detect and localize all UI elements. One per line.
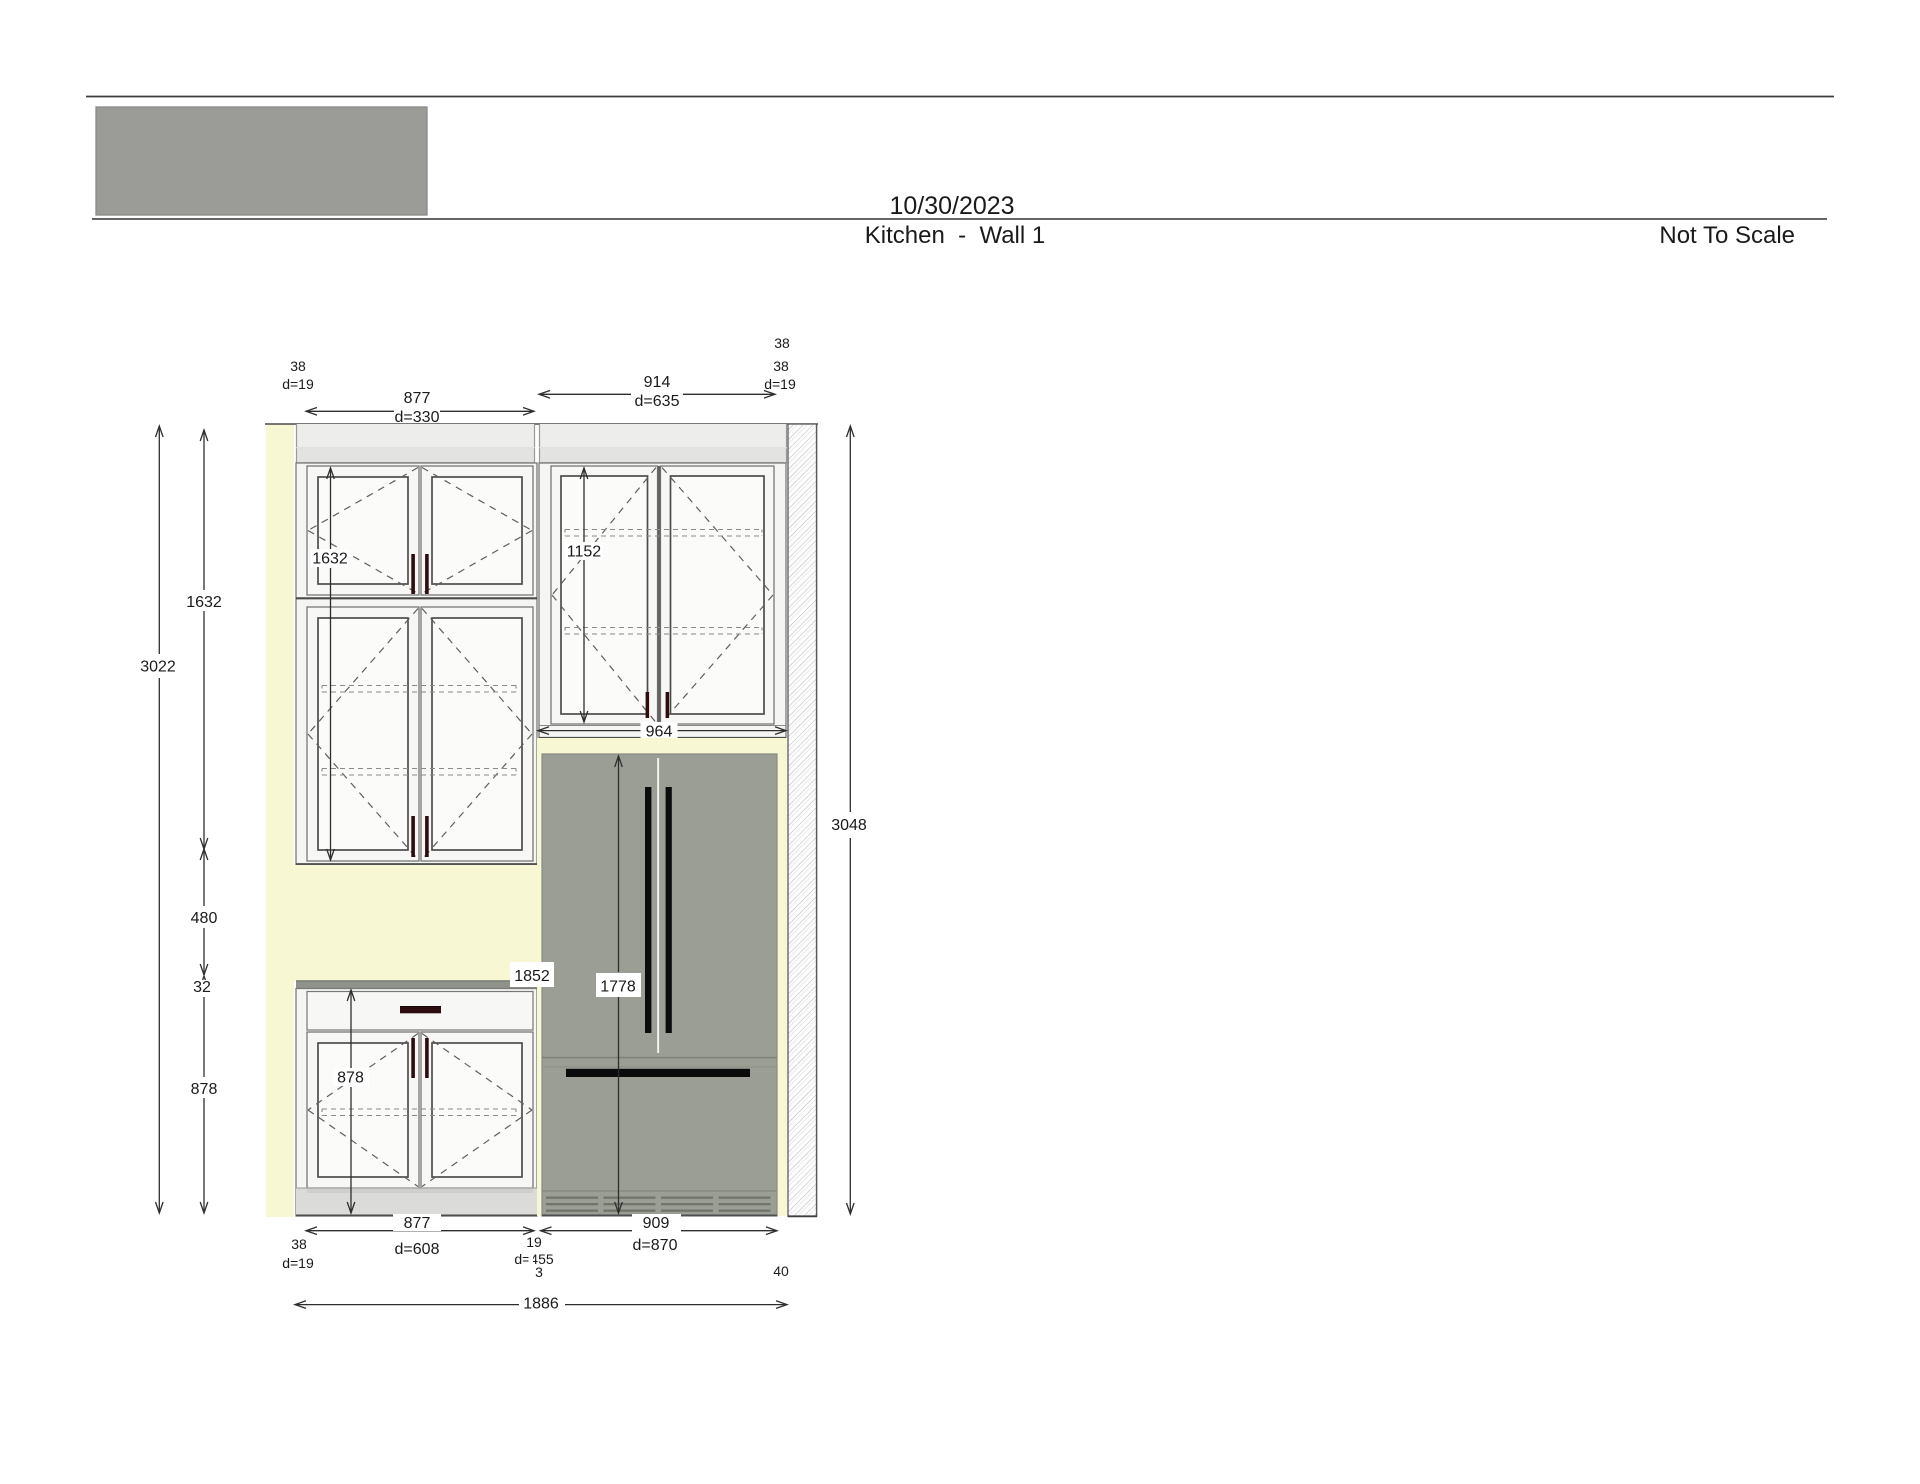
svg-text:d=608: d=608 (395, 1241, 440, 1258)
svg-text:1632: 1632 (312, 551, 348, 568)
svg-text:877: 877 (404, 390, 431, 407)
svg-text:1778: 1778 (600, 979, 636, 996)
svg-text:d=635: d=635 (635, 393, 680, 410)
svg-text:1886: 1886 (523, 1296, 559, 1313)
svg-text:10/30/2023: 10/30/2023 (889, 192, 1014, 220)
svg-text:1152: 1152 (567, 544, 602, 561)
svg-text:Not To Scale: Not To Scale (1659, 222, 1795, 249)
svg-text:909: 909 (643, 1215, 670, 1232)
svg-text:d=330: d=330 (395, 409, 440, 426)
svg-text:Kitchen - Wall 1: Kitchen - Wall 1 (865, 222, 1046, 249)
svg-text:38: 38 (773, 358, 789, 374)
svg-text:d=19: d=19 (282, 376, 314, 392)
svg-text:1852: 1852 (514, 968, 550, 985)
svg-text:38: 38 (290, 358, 306, 374)
svg-text:480: 480 (191, 910, 218, 927)
svg-text:877: 877 (404, 1215, 431, 1232)
svg-text:40: 40 (773, 1263, 789, 1279)
svg-text:1632: 1632 (186, 594, 222, 611)
svg-text:914: 914 (644, 374, 671, 391)
svg-text:964: 964 (646, 724, 673, 741)
svg-text:878: 878 (337, 1070, 364, 1087)
svg-text:3: 3 (535, 1264, 543, 1280)
svg-text:d=19: d=19 (282, 1255, 314, 1271)
svg-text:38: 38 (774, 335, 790, 351)
svg-text:d=455: d=455 (514, 1251, 554, 1267)
svg-text:19: 19 (526, 1234, 542, 1250)
svg-text:32: 32 (193, 979, 211, 996)
svg-text:878: 878 (191, 1081, 218, 1098)
svg-text:d=870: d=870 (633, 1237, 678, 1254)
svg-text:3048: 3048 (831, 817, 867, 834)
svg-text:d=19: d=19 (764, 376, 796, 392)
svg-text:3022: 3022 (140, 659, 176, 676)
svg-text:38: 38 (291, 1236, 307, 1252)
